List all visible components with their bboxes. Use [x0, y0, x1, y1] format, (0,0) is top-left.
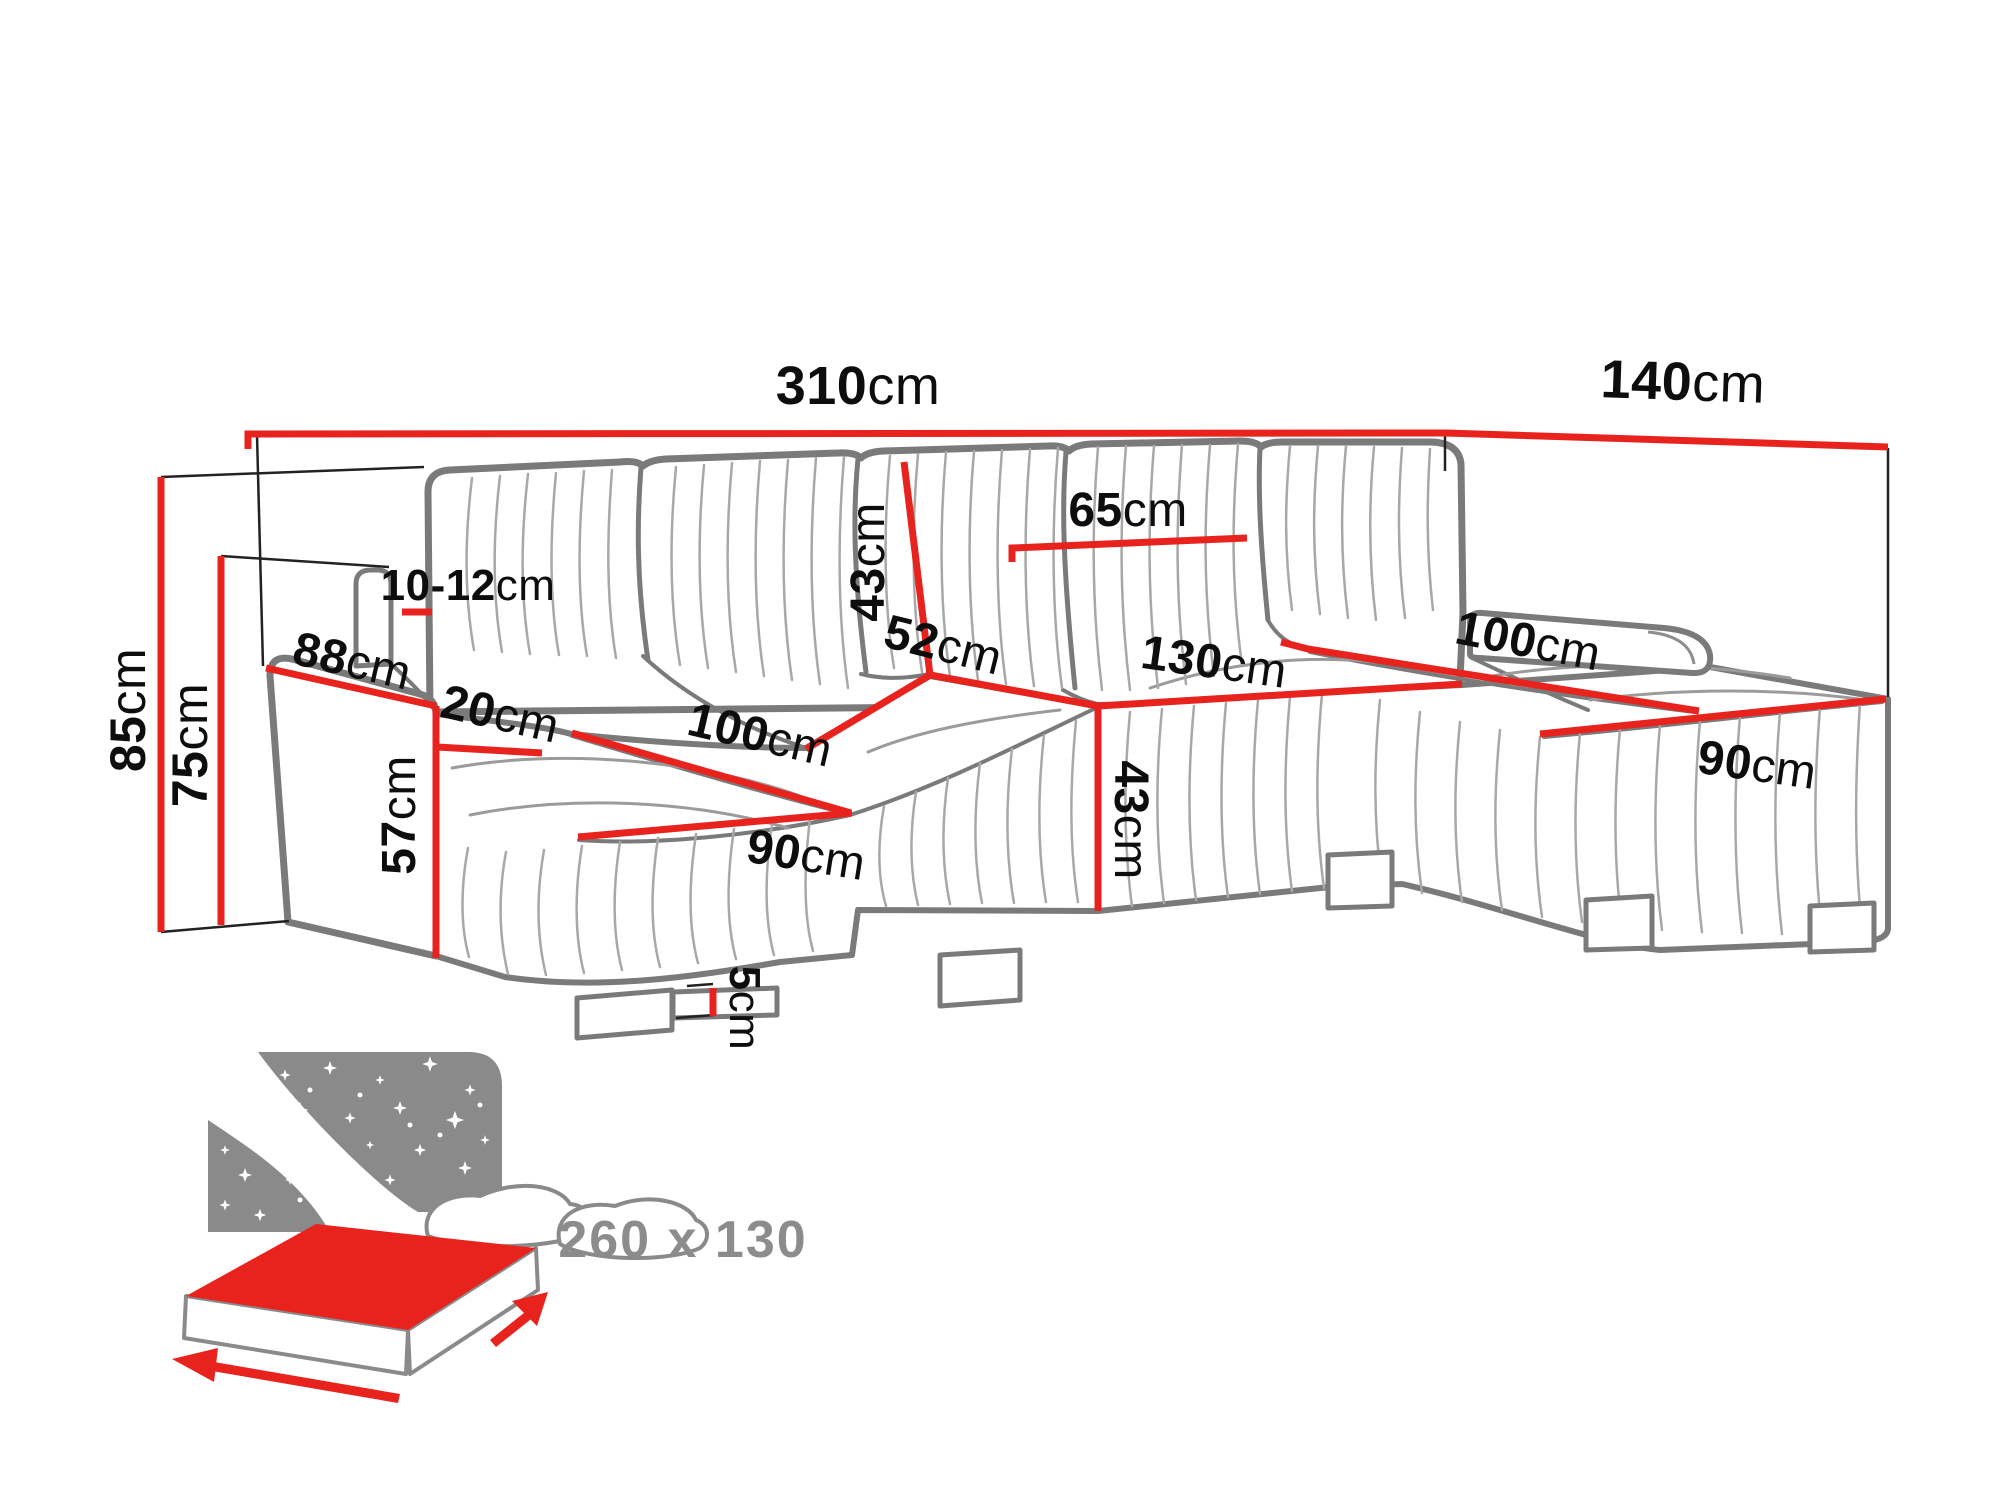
dim-headrest-band: 10-12cm [381, 564, 556, 608]
dim-chaise-right-width-unit: cm [1748, 739, 1820, 801]
dim-height-backrest-unit: cm [162, 683, 218, 751]
dim-chaise-left-width-value: 90 [743, 820, 805, 881]
dim-backrest-height-value: 43 [842, 567, 895, 621]
dim-backrest-height: 43cm [845, 502, 893, 621]
mattress-icon [184, 1224, 538, 1374]
dim-chaise-right-width-value: 90 [1694, 731, 1755, 791]
dim-seat-height: 57cm [376, 755, 424, 874]
dim-middle-seat-width-value: 130 [1138, 626, 1226, 690]
dim-backrest-height-unit: cm [842, 502, 895, 567]
night-sky-small-icon [208, 1120, 330, 1232]
dim-headrest-band-value: 10-12 [381, 561, 496, 610]
leg [1586, 896, 1652, 950]
dim-leg-height-unit: cm [720, 991, 769, 1051]
leg [1328, 852, 1392, 908]
dim-chaise-left-width-unit: cm [797, 829, 869, 892]
dim-height-total-unit: cm [100, 648, 156, 716]
dim-seat-front-height-unit: cm [1104, 815, 1157, 880]
furniture-dimension-diagram: 310cm 140cm 85cm 75cm 88cm 10-12cm 20cm … [0, 0, 2000, 1500]
dim-total-width: 310cm [776, 359, 941, 413]
dim-right-depth: 140cm [1600, 352, 1766, 412]
dim-total-width-value: 310 [776, 356, 868, 416]
dim-seat-height-unit: cm [373, 755, 426, 820]
dim-back-cushion-width-value: 65 [1068, 484, 1122, 537]
dim-right-depth-value: 140 [1600, 349, 1694, 412]
dim-height-backrest-value: 75 [162, 751, 218, 808]
sleeping-area-size: 260 x 130 [558, 1210, 807, 1270]
dim-right-depth-unit: cm [1691, 352, 1766, 415]
dim-seat-height-value: 57 [373, 820, 426, 874]
dim-seat-front-height-value: 43 [1104, 760, 1157, 814]
dim-middle-seat-width-unit: cm [1219, 637, 1291, 699]
dim-seat-front-height: 43cm [1106, 760, 1154, 879]
dim-back-cushion-width-unit: cm [1123, 484, 1188, 537]
leg [940, 950, 1020, 1006]
leg [1810, 903, 1874, 952]
dim-leg-height-value: 5 [720, 966, 769, 991]
leg [577, 990, 672, 1038]
dim-back-cushion-width: 65cm [1068, 487, 1187, 535]
dim-leg-height: 5cm [722, 966, 766, 1051]
dim-headrest-band-unit: cm [496, 561, 556, 610]
dim-total-width-unit: cm [867, 356, 940, 416]
dim-height-total-value: 85 [100, 716, 156, 773]
dim-height-backrest: 75cm [165, 683, 215, 807]
dim-height-total: 85cm [103, 648, 153, 772]
